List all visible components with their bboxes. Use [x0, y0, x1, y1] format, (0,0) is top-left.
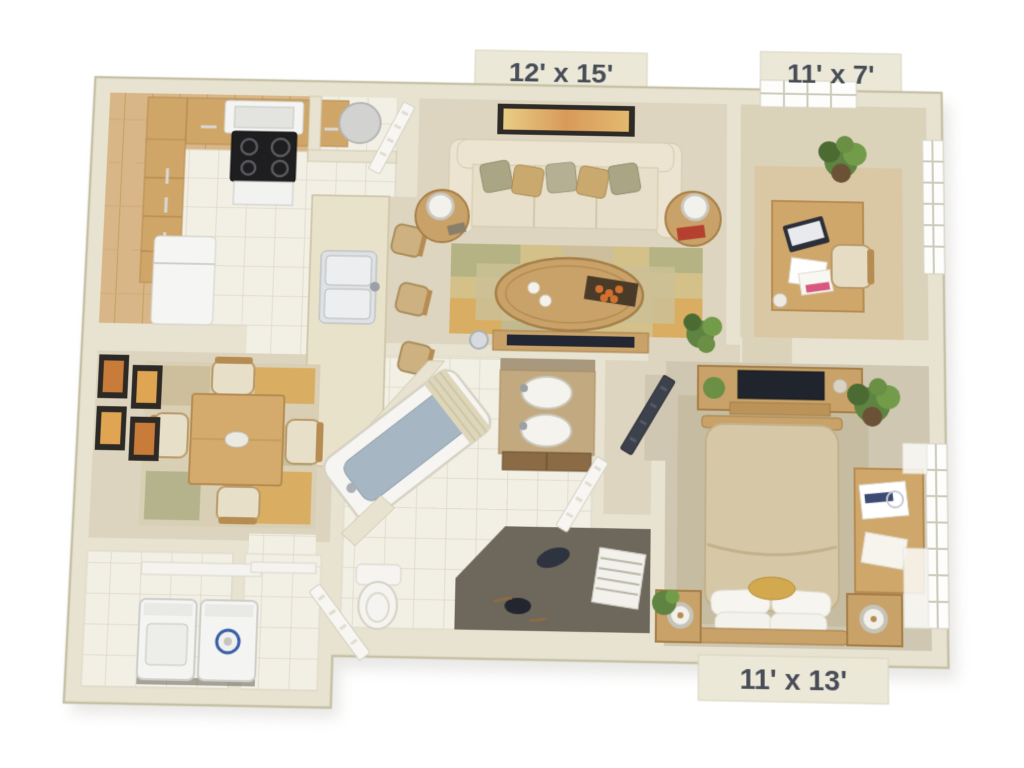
- bedroom-dimensions: 11' x 13': [740, 662, 848, 697]
- dresser-tv-console: [698, 366, 862, 417]
- dryer: [198, 600, 258, 681]
- vanity-sink: [521, 414, 572, 447]
- refrigerator: [151, 236, 216, 325]
- bed: [697, 415, 848, 645]
- floorplan-rendering: 12' x 15' 11' x 7' 11' x 13': [0, 4, 1024, 768]
- table-lamp: [682, 194, 708, 220]
- den-chair: [832, 245, 875, 289]
- den-door-opening: [742, 335, 792, 366]
- desk-mug: [773, 293, 787, 307]
- candle: [539, 295, 551, 307]
- sofa: [448, 139, 682, 238]
- flatscreen-tv: [738, 370, 824, 399]
- vanity: [498, 358, 595, 471]
- table-lamp: [427, 193, 453, 219]
- dining-chair: [212, 357, 255, 395]
- nightstand-left: [652, 589, 701, 642]
- utility-closet-wall: [308, 96, 322, 157]
- window-curtain: [903, 443, 927, 474]
- dining-chair: [216, 486, 260, 524]
- dining-chair: [285, 420, 324, 465]
- water-heater: [339, 103, 381, 144]
- floorplan-stage: 12' x 15' 11' x 7' 11' x 13': [0, 0, 1024, 768]
- wall-art-living: [497, 104, 635, 137]
- washer: [137, 599, 197, 680]
- headboard: [697, 628, 848, 645]
- oven-door: [233, 181, 293, 205]
- vanity-sink: [522, 376, 573, 409]
- laundry-shelf: [141, 562, 261, 577]
- wire-shelf-rack: [592, 547, 646, 609]
- media-console: [470, 330, 649, 353]
- nightstand-right: [847, 594, 902, 646]
- end-table-right: [665, 191, 721, 246]
- end-table-left: [415, 189, 470, 242]
- table-centerpiece: [224, 431, 249, 447]
- den-dimensions: 11' x 7': [787, 58, 875, 90]
- accent-pillow: [749, 577, 796, 600]
- floorplan-scene: 12' x 15' 11' x 7' 11' x 13': [0, 4, 1024, 768]
- window-curtain: [904, 548, 929, 628]
- round-mirror: [470, 331, 488, 349]
- stove-cooktop: [230, 131, 297, 182]
- candle: [528, 282, 540, 294]
- entry-shelf: [251, 562, 316, 573]
- living-room-dimensions: 12' x 15': [509, 57, 614, 89]
